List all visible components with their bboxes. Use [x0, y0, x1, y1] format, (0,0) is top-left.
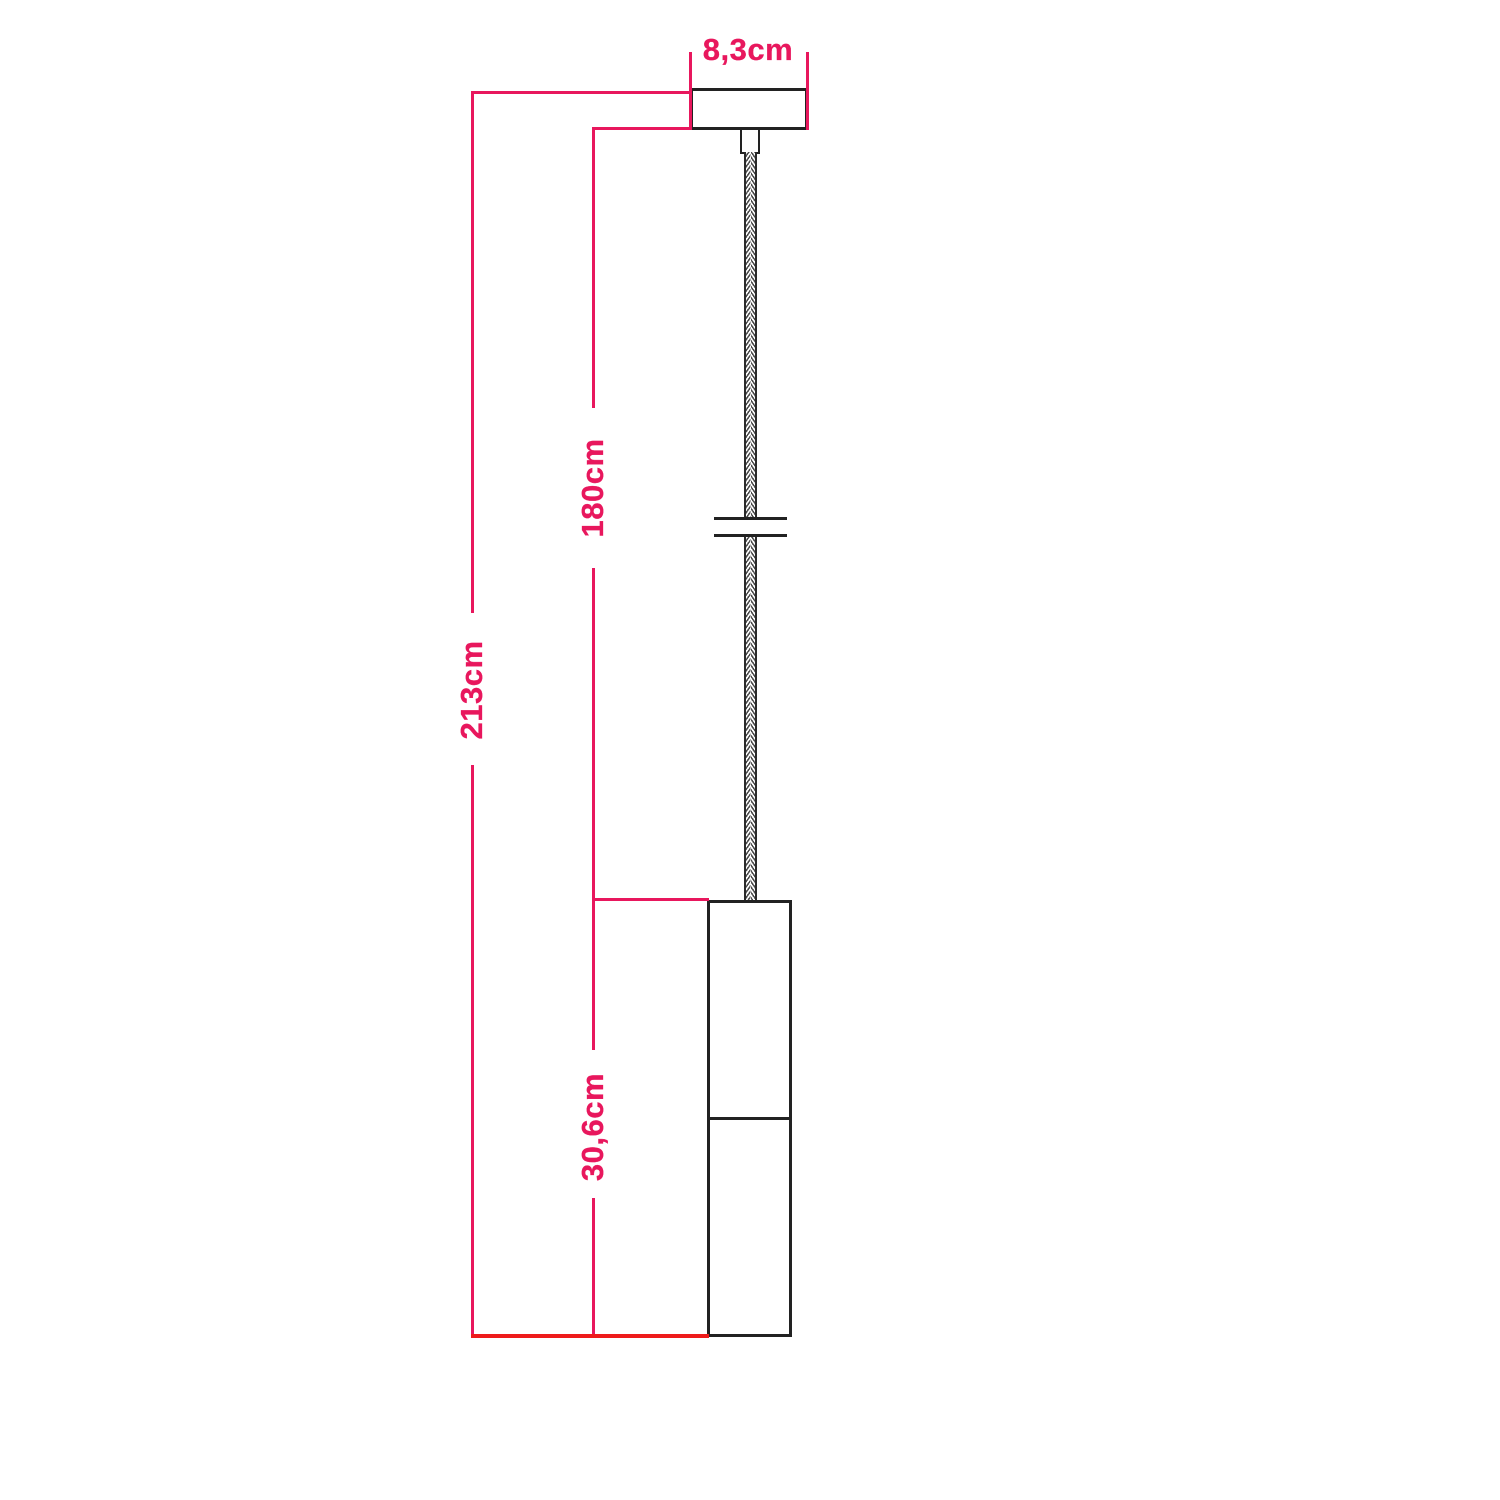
- dim-cable-top-extension: [592, 127, 691, 130]
- dim-cable-line-upper: [592, 127, 595, 408]
- ceiling-rose: [690, 88, 808, 130]
- dim-baseline-red: [471, 1334, 709, 1338]
- dim-total-label: 213cm: [453, 610, 491, 770]
- lamp-body-divider: [709, 1117, 790, 1120]
- shade-ring-top-line: [714, 517, 787, 520]
- dim-lamp-line-lower: [592, 1198, 595, 1337]
- braided-cable-upper: [744, 152, 757, 518]
- braided-cable-lower: [744, 537, 757, 902]
- dim-lamp-top-extension: [592, 898, 709, 901]
- dim-cable-line-lower: [592, 568, 595, 902]
- dim-total-top-extension: [471, 91, 691, 94]
- cable-grip: [740, 128, 760, 154]
- dim-lamp-line-upper: [592, 898, 595, 1050]
- pendant-lamp-dimension-diagram: 8,3cm 213cm 180cm 30,6cm: [0, 0, 1500, 1500]
- dim-total-line-upper: [471, 91, 474, 613]
- dim-total-line-lower: [471, 765, 474, 1337]
- dim-lamp-label: 30,6cm: [574, 1037, 612, 1217]
- dim-width-label: 8,3cm: [668, 32, 828, 68]
- dim-cable-label: 180cm: [574, 408, 612, 568]
